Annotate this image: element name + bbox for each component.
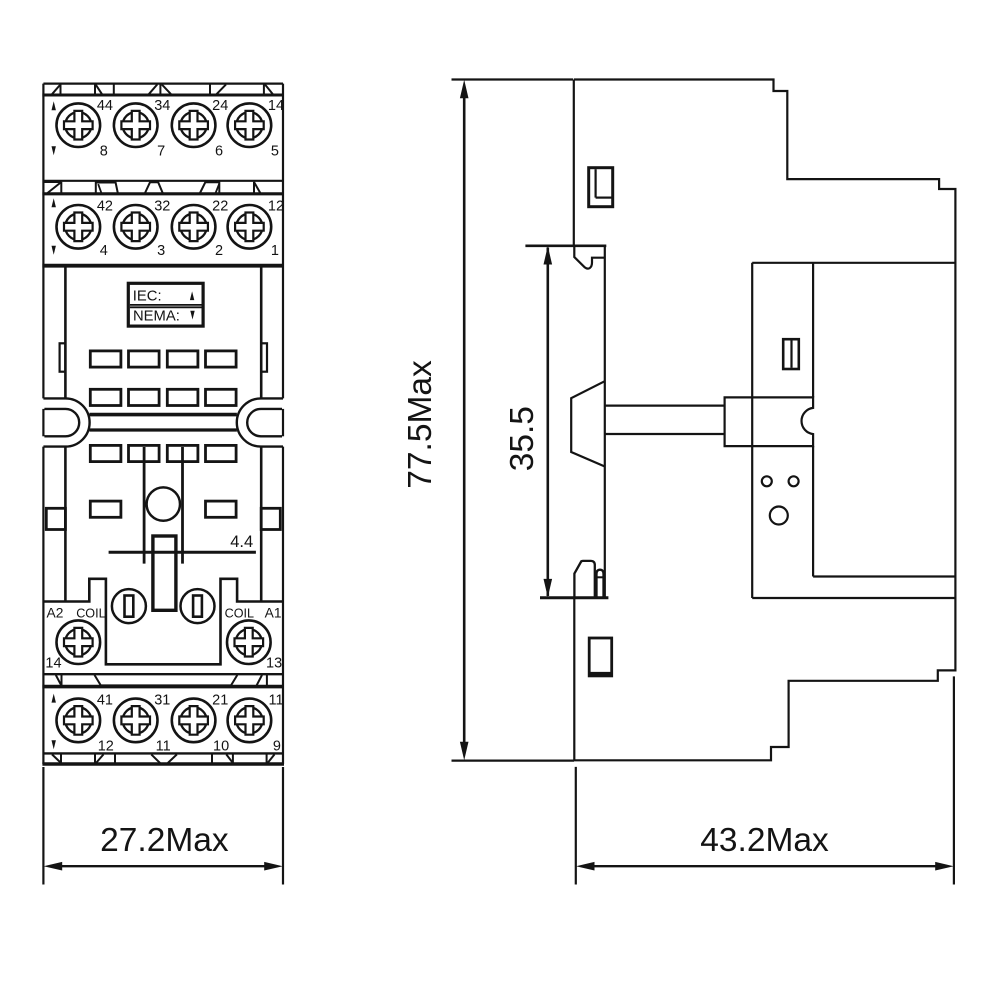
svg-text:5: 5	[271, 144, 279, 160]
svg-text:12: 12	[98, 738, 114, 754]
svg-text:NEMA:: NEMA:	[133, 309, 180, 325]
svg-text:10: 10	[213, 738, 229, 754]
svg-text:COIL: COIL	[225, 607, 254, 621]
svg-text:4: 4	[100, 243, 108, 259]
svg-text:27.2Max: 27.2Max	[100, 822, 229, 859]
svg-text:8: 8	[100, 144, 108, 160]
svg-text:41: 41	[97, 693, 113, 709]
svg-text:9: 9	[273, 738, 281, 754]
svg-text:COIL: COIL	[76, 607, 105, 621]
svg-text:31: 31	[154, 693, 170, 709]
svg-text:22: 22	[212, 199, 228, 215]
svg-text:43.2Max: 43.2Max	[700, 822, 829, 859]
svg-text:42: 42	[97, 199, 113, 215]
svg-text:7: 7	[157, 144, 165, 160]
svg-text:6: 6	[215, 144, 223, 160]
svg-text:14: 14	[45, 656, 61, 672]
svg-text:A2: A2	[47, 606, 64, 621]
svg-text:35.5: 35.5	[504, 406, 541, 471]
svg-text:11: 11	[156, 738, 171, 754]
svg-text:1: 1	[271, 243, 279, 259]
svg-text:21: 21	[212, 693, 228, 709]
svg-text:44: 44	[97, 98, 113, 114]
svg-text:12: 12	[268, 199, 284, 215]
svg-text:3: 3	[157, 243, 165, 259]
svg-text:IEC:: IEC:	[133, 288, 162, 304]
svg-text:32: 32	[154, 199, 170, 215]
svg-text:77.5Max: 77.5Max	[402, 360, 439, 489]
svg-text:11: 11	[268, 693, 283, 709]
svg-text:14: 14	[268, 98, 284, 114]
svg-text:34: 34	[154, 98, 170, 114]
svg-text:A1: A1	[265, 606, 282, 621]
svg-text:2: 2	[215, 243, 223, 259]
svg-text:13: 13	[266, 656, 282, 672]
svg-text:4.4: 4.4	[230, 533, 253, 551]
svg-text:24: 24	[212, 98, 228, 114]
